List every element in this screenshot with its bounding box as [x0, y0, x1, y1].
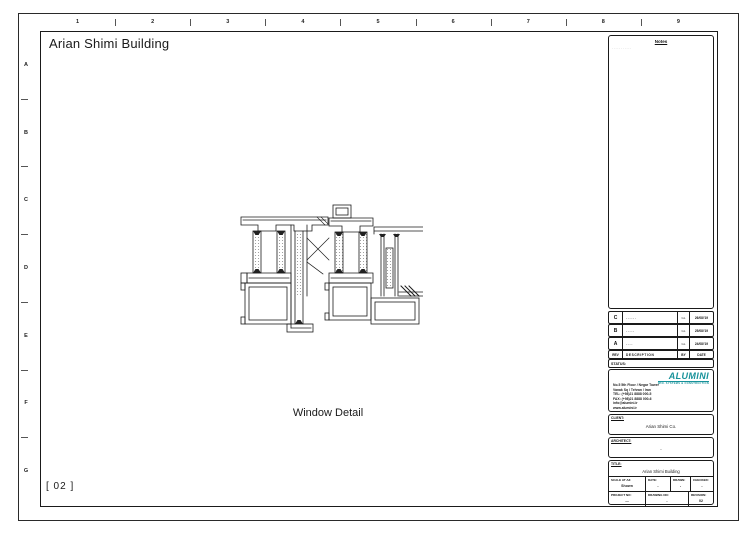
client-label: CLIENT: — [611, 416, 624, 420]
revision-letter: A — [609, 338, 623, 349]
revision-letter: C — [609, 312, 623, 323]
grid-row-tick — [21, 99, 28, 100]
date-cell: DATE: - — [646, 477, 671, 491]
revision-header-rev: REV — [609, 351, 623, 358]
grid-row-label: F — [24, 400, 27, 406]
grid-col-label: 5 — [376, 19, 379, 25]
address-line: No.5 5th Floor / Negar Tower — [613, 383, 659, 388]
grid-row-label: B — [24, 130, 28, 136]
revision-row-a: A ---- GL 24/08/'19 — [608, 337, 714, 350]
notes-box: Notes ........... — [608, 35, 714, 309]
title-block-row1: SCALE AT A3: Shown DATE: - DRAWN: - CHEC… — [609, 477, 713, 492]
title-value: Arian Shimi Building — [609, 469, 713, 474]
drawn-cell: DRAWN: - — [671, 477, 691, 491]
grid-row-label: D — [24, 265, 28, 271]
company-box: ALUMINI WIN. SYSTEMS & CONSTRUCTION No.5… — [608, 369, 714, 412]
revision-header-description: DESCRIPTION — [623, 351, 677, 358]
project-no-label: PROJECT NO: — [611, 493, 632, 497]
revision-row-c: C ------ GL 26/08/'19 — [608, 311, 714, 324]
grid-row-tick — [21, 370, 28, 371]
revision-header-date: DATE — [689, 351, 713, 358]
grid-row-tick — [21, 234, 28, 235]
revision-date: 24/08/'19 — [689, 338, 713, 349]
company-logo-text: ALUMINI — [658, 372, 709, 381]
grid-col-label: 6 — [452, 19, 455, 25]
scale-value: Shown — [609, 484, 645, 488]
scale-label: SCALE AT A3: — [611, 478, 631, 482]
title-block: TITLE: Arian Shimi Building SCALE AT A3:… — [608, 460, 714, 505]
grid-col-tick — [491, 19, 492, 26]
company-tagline: WIN. SYSTEMS & CONSTRUCTION — [658, 381, 709, 385]
project-no-value: — — [609, 499, 645, 503]
revision-description: ---- — [623, 338, 677, 349]
grid-col-label: 3 — [226, 19, 229, 25]
scale-cell: SCALE AT A3: Shown — [609, 477, 646, 491]
drawing-caption: Window Detail — [233, 407, 423, 419]
checked-value: - — [691, 484, 713, 488]
grid-col-label: 2 — [151, 19, 154, 25]
title-strip: TITLE: Arian Shimi Building — [609, 461, 713, 477]
revision-description: ------ — [623, 312, 677, 323]
grid-row-label: G — [24, 468, 28, 474]
revision-header-by: BY — [677, 351, 689, 358]
sheet-number: [ 02 ] — [46, 481, 74, 492]
grid-col-tick — [340, 19, 341, 26]
revision-by: GL — [677, 312, 689, 323]
revision-date: 25/08/'19 — [689, 325, 713, 336]
page-title: Arian Shimi Building — [49, 36, 169, 51]
status-label: STATUS: — [611, 362, 626, 366]
grid-col-tick — [416, 19, 417, 26]
notes-content: ........... — [612, 46, 713, 50]
drawing-no-cell: DRAWING NO: - — [646, 492, 689, 506]
grid-col-tick — [265, 19, 266, 26]
revision-row-b: B ----- GL 25/08/'19 — [608, 324, 714, 337]
revision-by: GL — [677, 325, 689, 336]
title-label: TITLE: — [611, 462, 622, 466]
revision-header-row: REV DESCRIPTION BY DATE — [608, 350, 714, 359]
grid-col-label: 8 — [602, 19, 605, 25]
project-no-cell: PROJECT NO: — — [609, 492, 646, 506]
drawing-no-label: DRAWING NO: — [648, 493, 669, 497]
drawing-no-value: - — [646, 499, 688, 503]
architect-value: - — [609, 447, 713, 452]
grid-row-label: C — [24, 197, 28, 203]
date-label: DATE: — [648, 478, 657, 482]
grid-col-label: 1 — [76, 19, 79, 25]
revision-no-value: 02 — [689, 499, 713, 503]
title-block-row2: PROJECT NO: — DRAWING NO: - REVISION: 02 — [609, 492, 713, 506]
drawn-label: DRAWN: — [673, 478, 685, 482]
company-logo: ALUMINI WIN. SYSTEMS & CONSTRUCTION — [658, 372, 709, 385]
revision-cell: REVISION: 02 — [689, 492, 713, 506]
drawn-value: - — [671, 484, 690, 488]
checked-cell: CHECKED: - — [691, 477, 713, 491]
drawing-sheet: 123456789ABCDEFG Arian Shimi Building — [0, 0, 754, 533]
architect-label: ARCHITECT: — [611, 439, 631, 443]
grid-col-tick — [566, 19, 567, 26]
revision-description: ----- — [623, 325, 677, 336]
status-bar: STATUS: — [608, 359, 714, 368]
address-line: www.alumini.ir — [613, 406, 659, 411]
date-value: - — [646, 484, 670, 488]
revision-by: GL — [677, 338, 689, 349]
grid-row-tick — [21, 166, 28, 167]
grid-row-label: A — [24, 62, 28, 68]
grid-col-tick — [190, 19, 191, 26]
grid-row-tick — [21, 437, 28, 438]
checked-label: CHECKED: — [693, 478, 709, 482]
company-address: No.5 5th Floor / Negar Tower Vanak Sq / … — [613, 383, 659, 411]
grid-col-label: 7 — [527, 19, 530, 25]
grid-row-tick — [21, 302, 28, 303]
notes-label: Notes — [609, 39, 713, 44]
grid-col-tick — [115, 19, 116, 26]
grid-row-label: E — [24, 333, 28, 339]
grid-col-label: 9 — [677, 19, 680, 25]
grid-col-tick — [641, 19, 642, 26]
architect-box: ARCHITECT: - — [608, 437, 714, 458]
revision-letter: B — [609, 325, 623, 336]
window-detail-drawing — [233, 200, 423, 335]
revision-date: 26/08/'19 — [689, 312, 713, 323]
client-box: CLIENT: Arian Shimi Co. — [608, 414, 714, 435]
grid-col-label: 4 — [301, 19, 304, 25]
client-value: Arian Shimi Co. — [609, 424, 713, 429]
revision-no-label: REVISION: — [691, 493, 706, 497]
